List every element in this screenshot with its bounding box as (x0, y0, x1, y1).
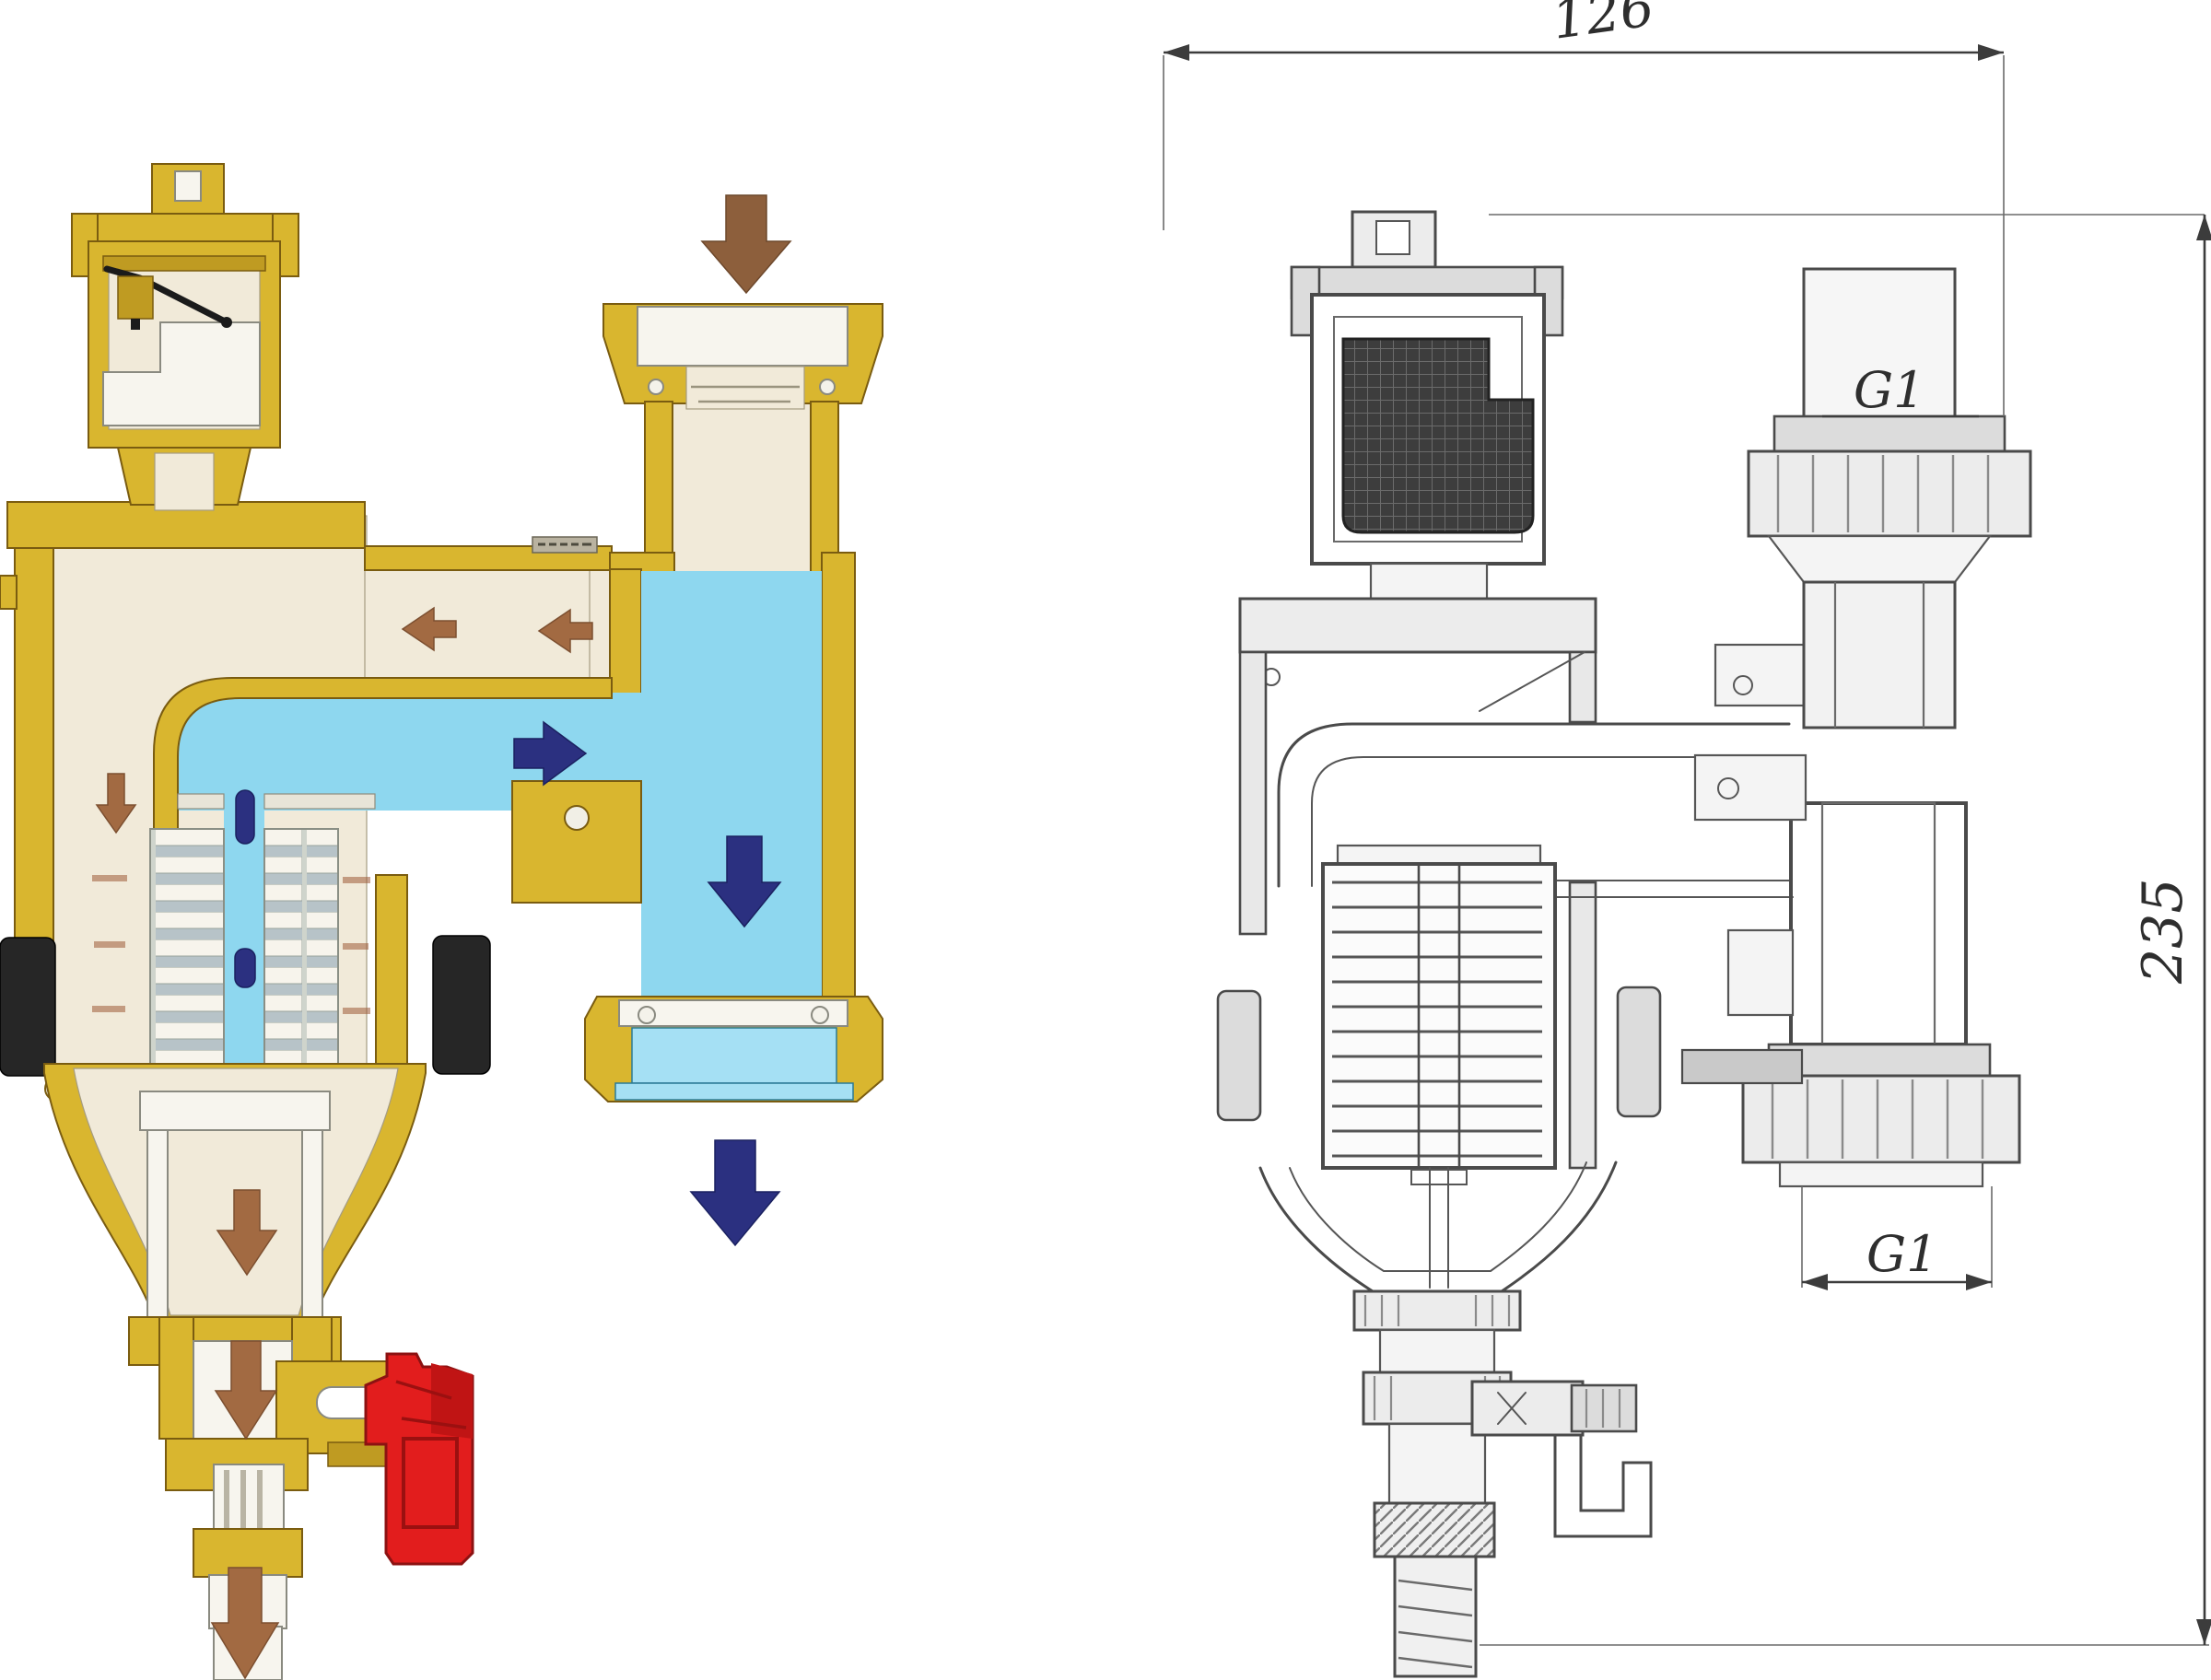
body-right-wall (376, 875, 407, 1070)
vent-cap-flange (72, 214, 298, 243)
right-technical-drawing: 126 235 G1 G1 (1164, 0, 2211, 1676)
pipe-right-wall (822, 553, 855, 997)
inlet-union (603, 304, 883, 409)
t-drain-assembly (1354, 1291, 1651, 1676)
magnet-rod-lower (235, 949, 255, 987)
air-vent-chamber (72, 164, 298, 510)
valve-diagram-canvas: 126 235 G1 G1 (0, 0, 2211, 1680)
float (118, 276, 153, 319)
bottom-port-label: G1 (1866, 1225, 1938, 1283)
dimension-annotations: 126 235 G1 G1 (1164, 0, 2211, 1645)
seat-block (512, 781, 641, 903)
t-filter-cartridge (1218, 846, 1802, 1168)
sight-glass-window (632, 1028, 836, 1083)
t-side-clip-left (1218, 991, 1260, 1120)
standpipe-cap (140, 1091, 330, 1130)
t-valve-handle-loop (1555, 1435, 1651, 1536)
left-cutaway-diagram (0, 164, 883, 1680)
t-side-clip-right (1618, 987, 1660, 1116)
t-body-top-band (1240, 599, 1596, 652)
side-seal-right (433, 936, 490, 1074)
inlet-flow-down-arrow (702, 195, 790, 293)
side-seal-left (0, 938, 55, 1076)
width-dimension-label: 126 (1548, 0, 1657, 52)
t-settling-bowl (1260, 1162, 1616, 1291)
sight-glass-union (585, 997, 883, 1102)
top-port-label: G1 (1854, 361, 1925, 419)
outlet-flow-down-arrow (691, 1140, 779, 1245)
magnet-rod-upper (236, 790, 254, 844)
embossed-label-strip (532, 537, 597, 553)
height-dimension-label: 235 (2131, 878, 2195, 985)
t-air-vent (1292, 212, 1562, 599)
t-drain-valve (1472, 1382, 1583, 1435)
